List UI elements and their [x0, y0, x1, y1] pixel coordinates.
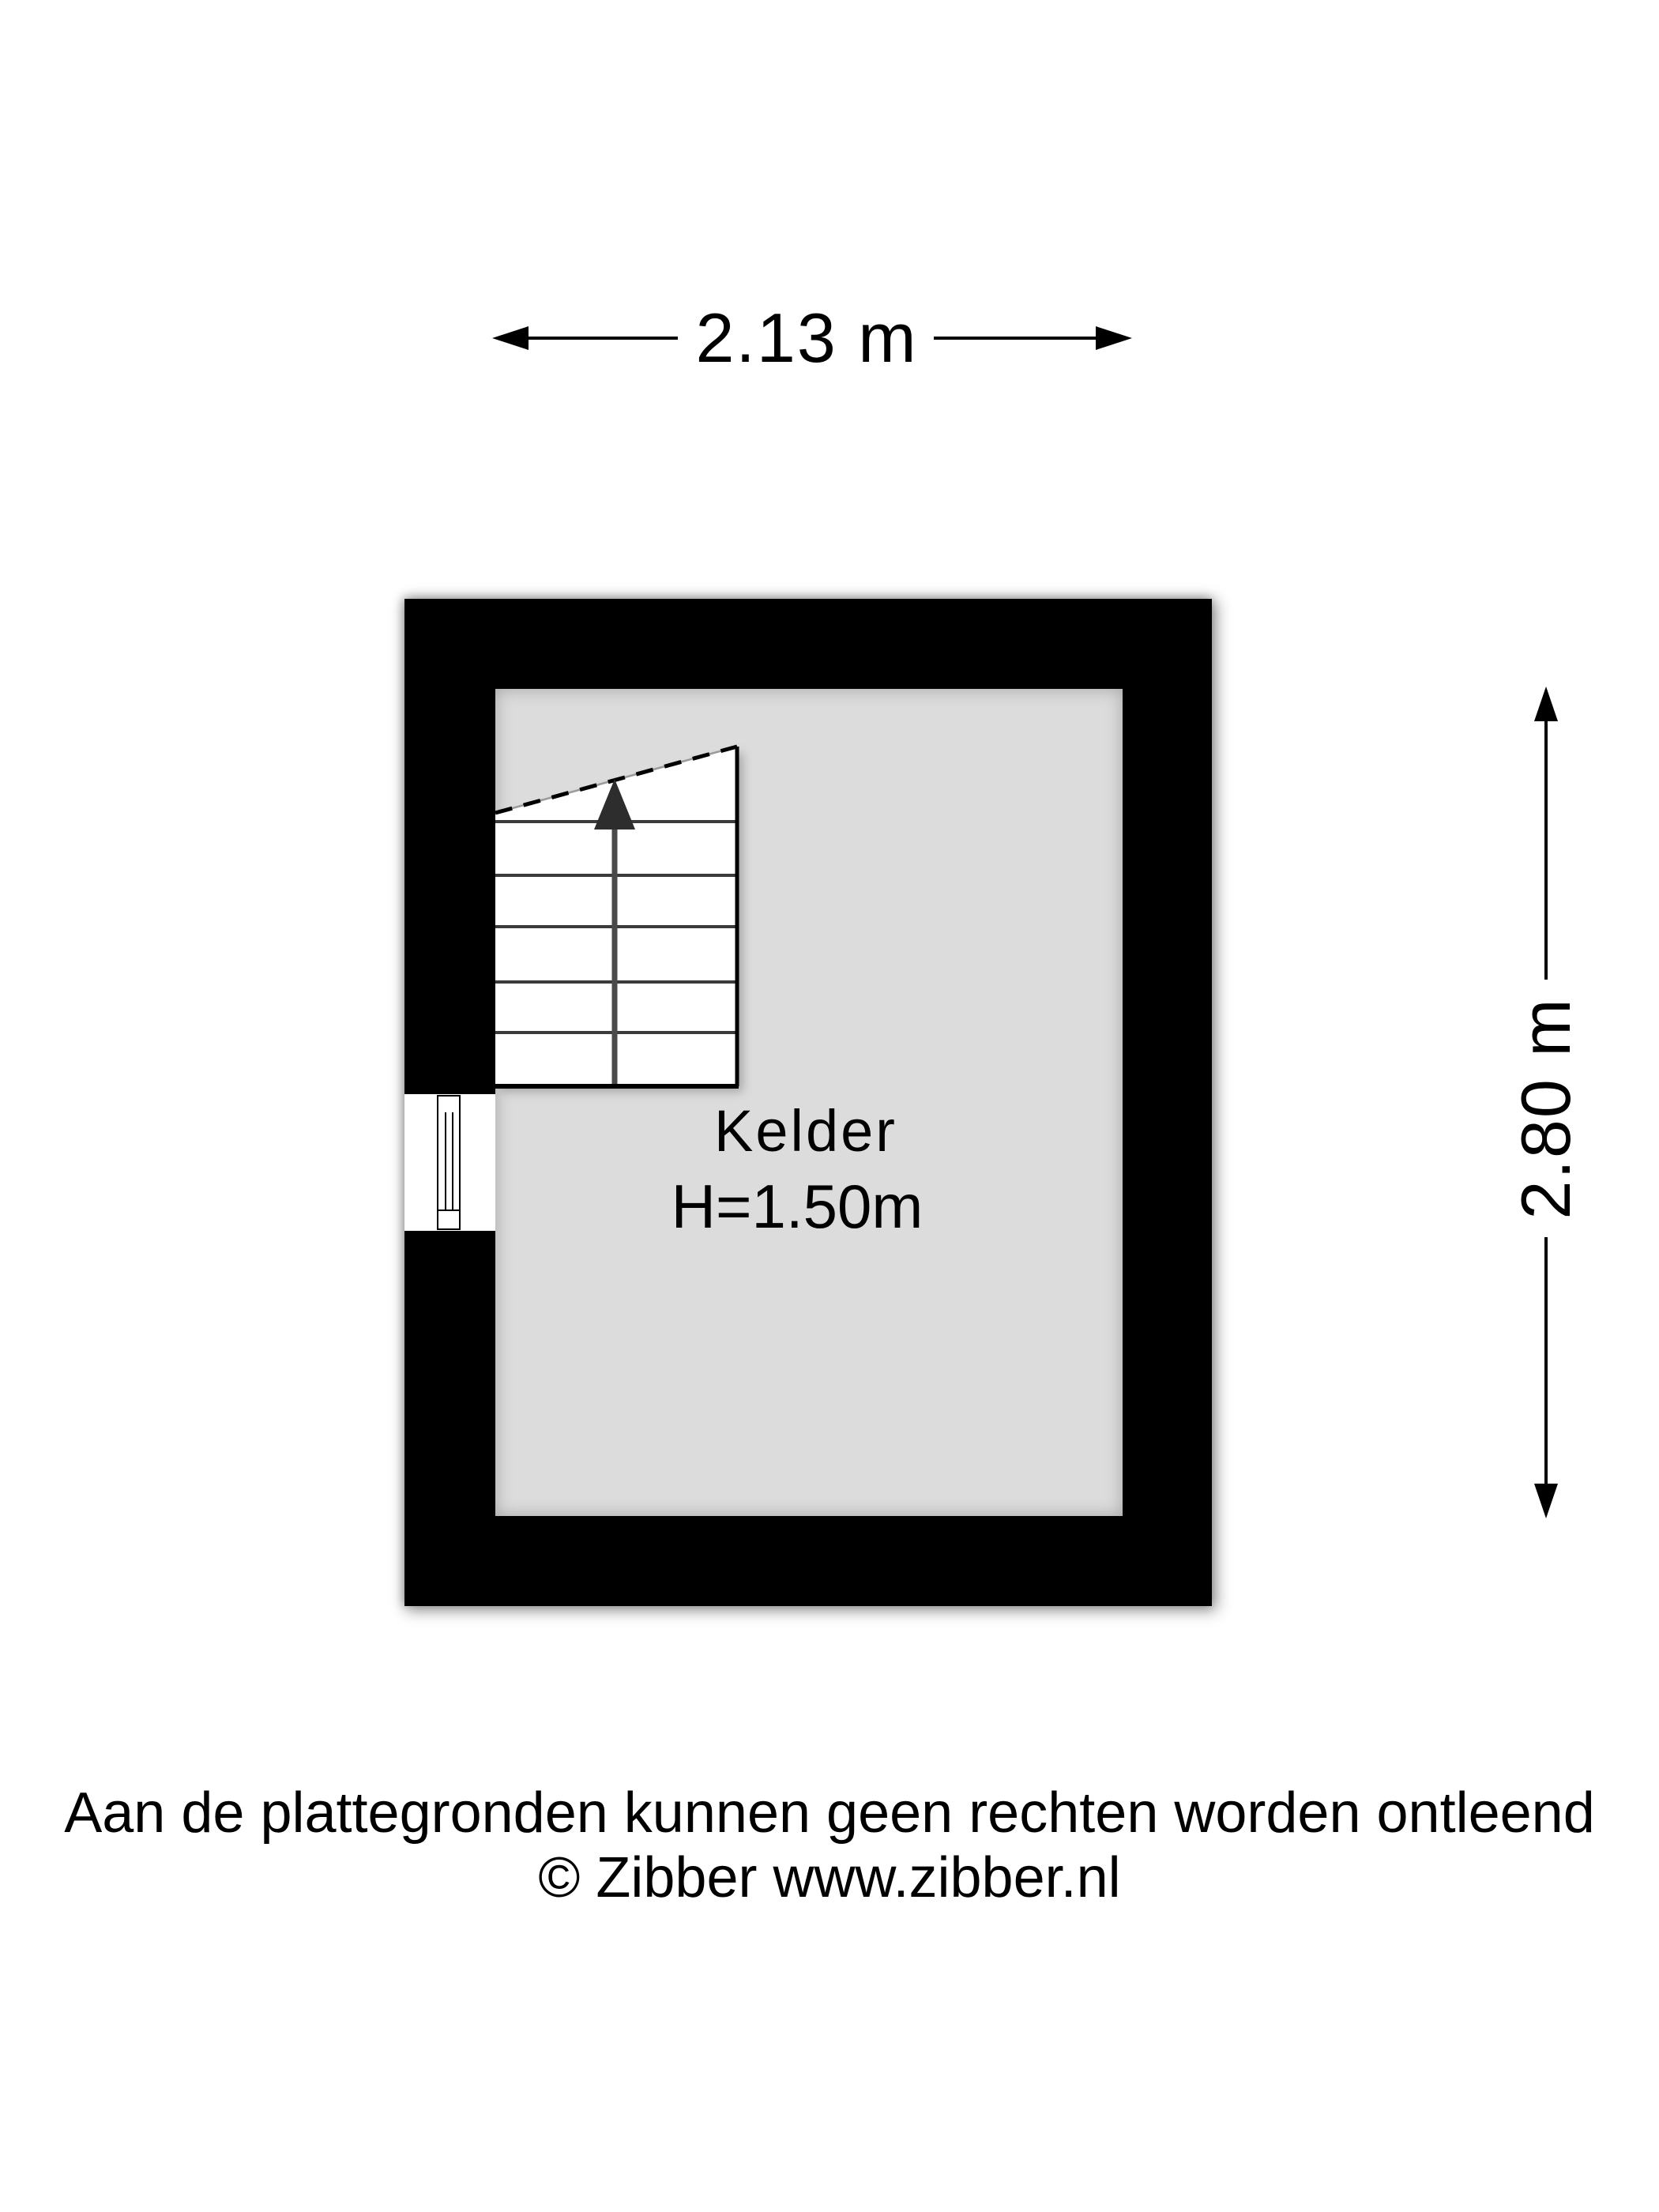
window-pane-line: [445, 1112, 446, 1211]
arrow-up-icon: [1534, 687, 1558, 721]
footer-disclaimer: Aan de plattegronden kunnen geen rechten…: [0, 1781, 1659, 1845]
room-label: Kelder: [648, 1101, 964, 1161]
width-dimension-label: 2.13 m: [609, 303, 1004, 374]
window-frame-glass: [437, 1112, 461, 1211]
height-dimension-label: 2.80 m: [1510, 911, 1582, 1306]
footer-copyright: © Zibber www.zibber.nl: [0, 1845, 1659, 1910]
arrow-right-icon: [1096, 326, 1132, 350]
window-frame-bottom: [437, 1209, 461, 1230]
window-frame-top: [437, 1095, 461, 1114]
arrow-down-icon: [1534, 1484, 1558, 1518]
room-height-label: H=1.50m: [639, 1175, 955, 1238]
floorplan-canvas: 2.13 m 2.80 m Kelder H=1.50m Aan de plat…: [0, 0, 1659, 2212]
arrow-left-icon: [492, 326, 529, 350]
window-pane-line: [452, 1112, 453, 1211]
window-opening: [404, 1094, 495, 1231]
